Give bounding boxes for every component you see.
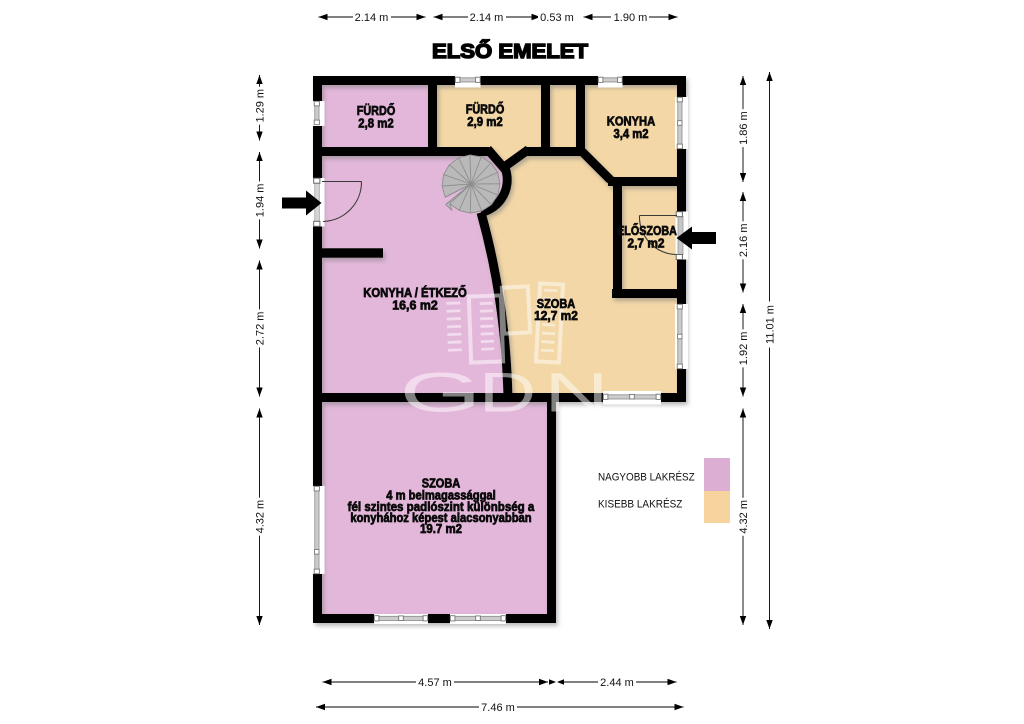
svg-text:16,6 m2: 16,6 m2 — [392, 298, 438, 313]
svg-text:2.14 m: 2.14 m — [355, 12, 389, 24]
svg-text:12,7 m2: 12,7 m2 — [534, 308, 578, 323]
svg-text:2,7 m2: 2,7 m2 — [628, 236, 665, 251]
svg-text:NAGYOBB LAKRÉSZ: NAGYOBB LAKRÉSZ — [598, 470, 695, 483]
svg-text:0.53 m: 0.53 m — [540, 12, 574, 24]
svg-text:4.32 m: 4.32 m — [255, 500, 267, 534]
svg-text:1.86 m: 1.86 m — [738, 111, 750, 145]
svg-text:ELSŐ EMELET: ELSŐ EMELET — [432, 40, 589, 63]
svg-text:4.32 m: 4.32 m — [738, 500, 750, 534]
svg-text:19.7 m2: 19.7 m2 — [420, 521, 462, 536]
svg-text:2,9 m2: 2,9 m2 — [467, 114, 503, 129]
svg-text:11.01 m: 11.01 m — [765, 305, 777, 344]
svg-text:2.44 m: 2.44 m — [600, 677, 634, 689]
svg-text:4.57 m: 4.57 m — [418, 677, 452, 689]
svg-text:1.92 m: 1.92 m — [738, 332, 750, 366]
svg-text:N: N — [544, 361, 609, 424]
svg-text:KISEBB LAKRÉSZ: KISEBB LAKRÉSZ — [598, 497, 683, 510]
svg-text:2.72 m: 2.72 m — [255, 312, 267, 346]
svg-text:D: D — [479, 361, 536, 424]
svg-text:7.46 m: 7.46 m — [481, 702, 515, 714]
svg-text:1.29 m: 1.29 m — [255, 89, 267, 123]
svg-text:3,4 m2: 3,4 m2 — [614, 126, 649, 141]
svg-text:1.94 m: 1.94 m — [255, 184, 267, 218]
svg-text:G: G — [400, 361, 482, 423]
svg-text:1.90 m: 1.90 m — [614, 12, 648, 24]
svg-text:2.16 m: 2.16 m — [738, 223, 750, 257]
svg-text:2.14 m: 2.14 m — [470, 12, 504, 24]
svg-text:2,8 m2: 2,8 m2 — [358, 116, 394, 131]
